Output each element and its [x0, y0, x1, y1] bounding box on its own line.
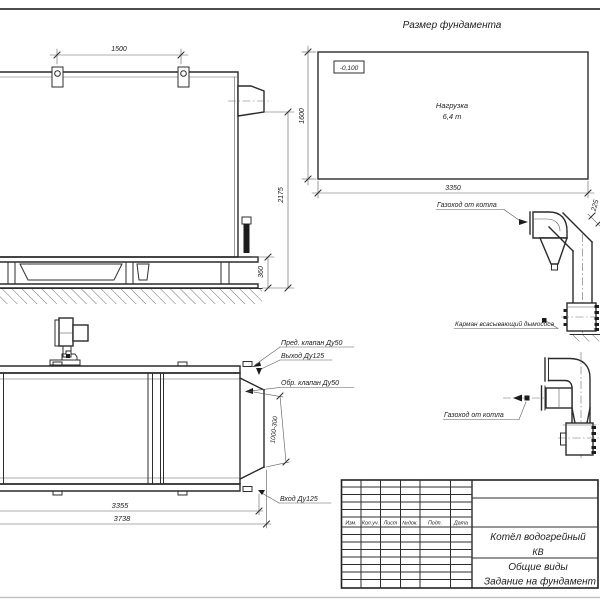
dim-3355-text: 3355	[112, 501, 130, 510]
product-name-line2: КВ	[532, 547, 543, 557]
foundation-plan: Размер фундамента -0,100 Нагрузка 6,4 т …	[299, 19, 594, 198]
label-check-valve: Обр. клапан Ду50	[245, 379, 354, 394]
drawing-sheet: 1500	[0, 0, 600, 600]
dim-range: 1000-300	[248, 391, 289, 467]
load-text-1: Нагрузка	[436, 101, 468, 110]
dim-height: 2175	[262, 109, 294, 291]
col-ndok: №док.	[402, 521, 418, 527]
gas-duct-lower: Газоход от котла	[443, 352, 600, 458]
doc-type-line1: Общие виды	[508, 561, 568, 573]
dim-3350-text: 3350	[445, 185, 461, 192]
duct-label: Газоход от котла	[443, 395, 530, 420]
duct-upper-label-text: Газоход от котла	[437, 201, 497, 209]
load-text-2: 6,4 т	[443, 112, 462, 121]
duct-label: Газоход от котла	[436, 201, 528, 225]
dim-2175-text: 2175	[278, 187, 285, 204]
side-view: 1500	[0, 46, 294, 304]
inlet-text: Вход Ду125	[280, 495, 318, 503]
dim-base-height: 360	[252, 254, 274, 291]
dim-3738-text: 3738	[114, 514, 132, 523]
leader-arrow	[519, 219, 528, 225]
dim-duct-offset: 225	[588, 199, 600, 226]
dim-depth: 1600	[299, 46, 316, 185]
dim-1600-text: 1600	[299, 108, 306, 124]
dim-width: 3350	[312, 181, 594, 198]
exhauster-connection	[558, 423, 600, 455]
safety-valve-flange	[243, 362, 252, 367]
top-view: Пред. клапан Ду50 Выход Ду125 Обр. клапа…	[0, 318, 354, 528]
dim-360-text: 360	[258, 266, 265, 278]
dim-total-length: 3738	[0, 470, 271, 528]
title-block: Изм. Кол.уч. Лист №док. Подп. Дата Котёл…	[342, 480, 599, 588]
drawing-canvas: 1500	[0, 0, 600, 600]
safety-valve-text: Пред. клапан Ду50	[281, 339, 343, 347]
elevation-text: -0,100	[340, 65, 359, 72]
doc-type-line2: Задание на фундамент	[484, 576, 596, 588]
col-list: Лист	[383, 521, 398, 527]
ground-hatch-small	[570, 335, 600, 342]
dim-225-text: 225	[590, 199, 600, 213]
duct-lower-label-text: Газоход от котла	[444, 411, 504, 419]
drain-fitting	[242, 217, 251, 253]
burner-assembly	[50, 318, 88, 365]
dim-range-text: 1000-300	[270, 415, 280, 443]
label-outlet: Выход Ду125	[256, 352, 332, 375]
col-podp: Подп.	[428, 521, 442, 527]
inlet-flange	[243, 487, 252, 492]
dim-lug-spacing: 1500	[50, 46, 188, 64]
label-inlet: Вход Ду125	[258, 490, 331, 503]
outlet-text: Выход Ду125	[281, 352, 324, 360]
pocket-label: Карман всасывающий дымососа	[454, 318, 558, 329]
lifting-lug	[52, 67, 63, 87]
col-data: Дата	[453, 521, 468, 527]
pocket-label-text: Карман всасывающий дымососа	[455, 320, 554, 328]
lifting-lug	[178, 67, 189, 87]
check-valve-text: Обр. клапан Ду50	[281, 379, 339, 387]
col-izm: Изм.	[345, 521, 356, 527]
gas-duct-upper: Газоход от котла 225	[436, 199, 600, 342]
foundation-title: Размер фундамента	[403, 19, 502, 31]
base-frame	[0, 257, 258, 288]
col-koluch: Кол.уч.	[362, 521, 379, 527]
suction-pocket	[561, 303, 600, 331]
dim-1500-text: 1500	[111, 46, 127, 53]
product-name-line1: Котёл водогрейный	[490, 532, 586, 543]
ground-hatch	[0, 289, 262, 305]
leader-arrow	[513, 395, 522, 402]
dim-body-length: 3355	[0, 494, 263, 515]
